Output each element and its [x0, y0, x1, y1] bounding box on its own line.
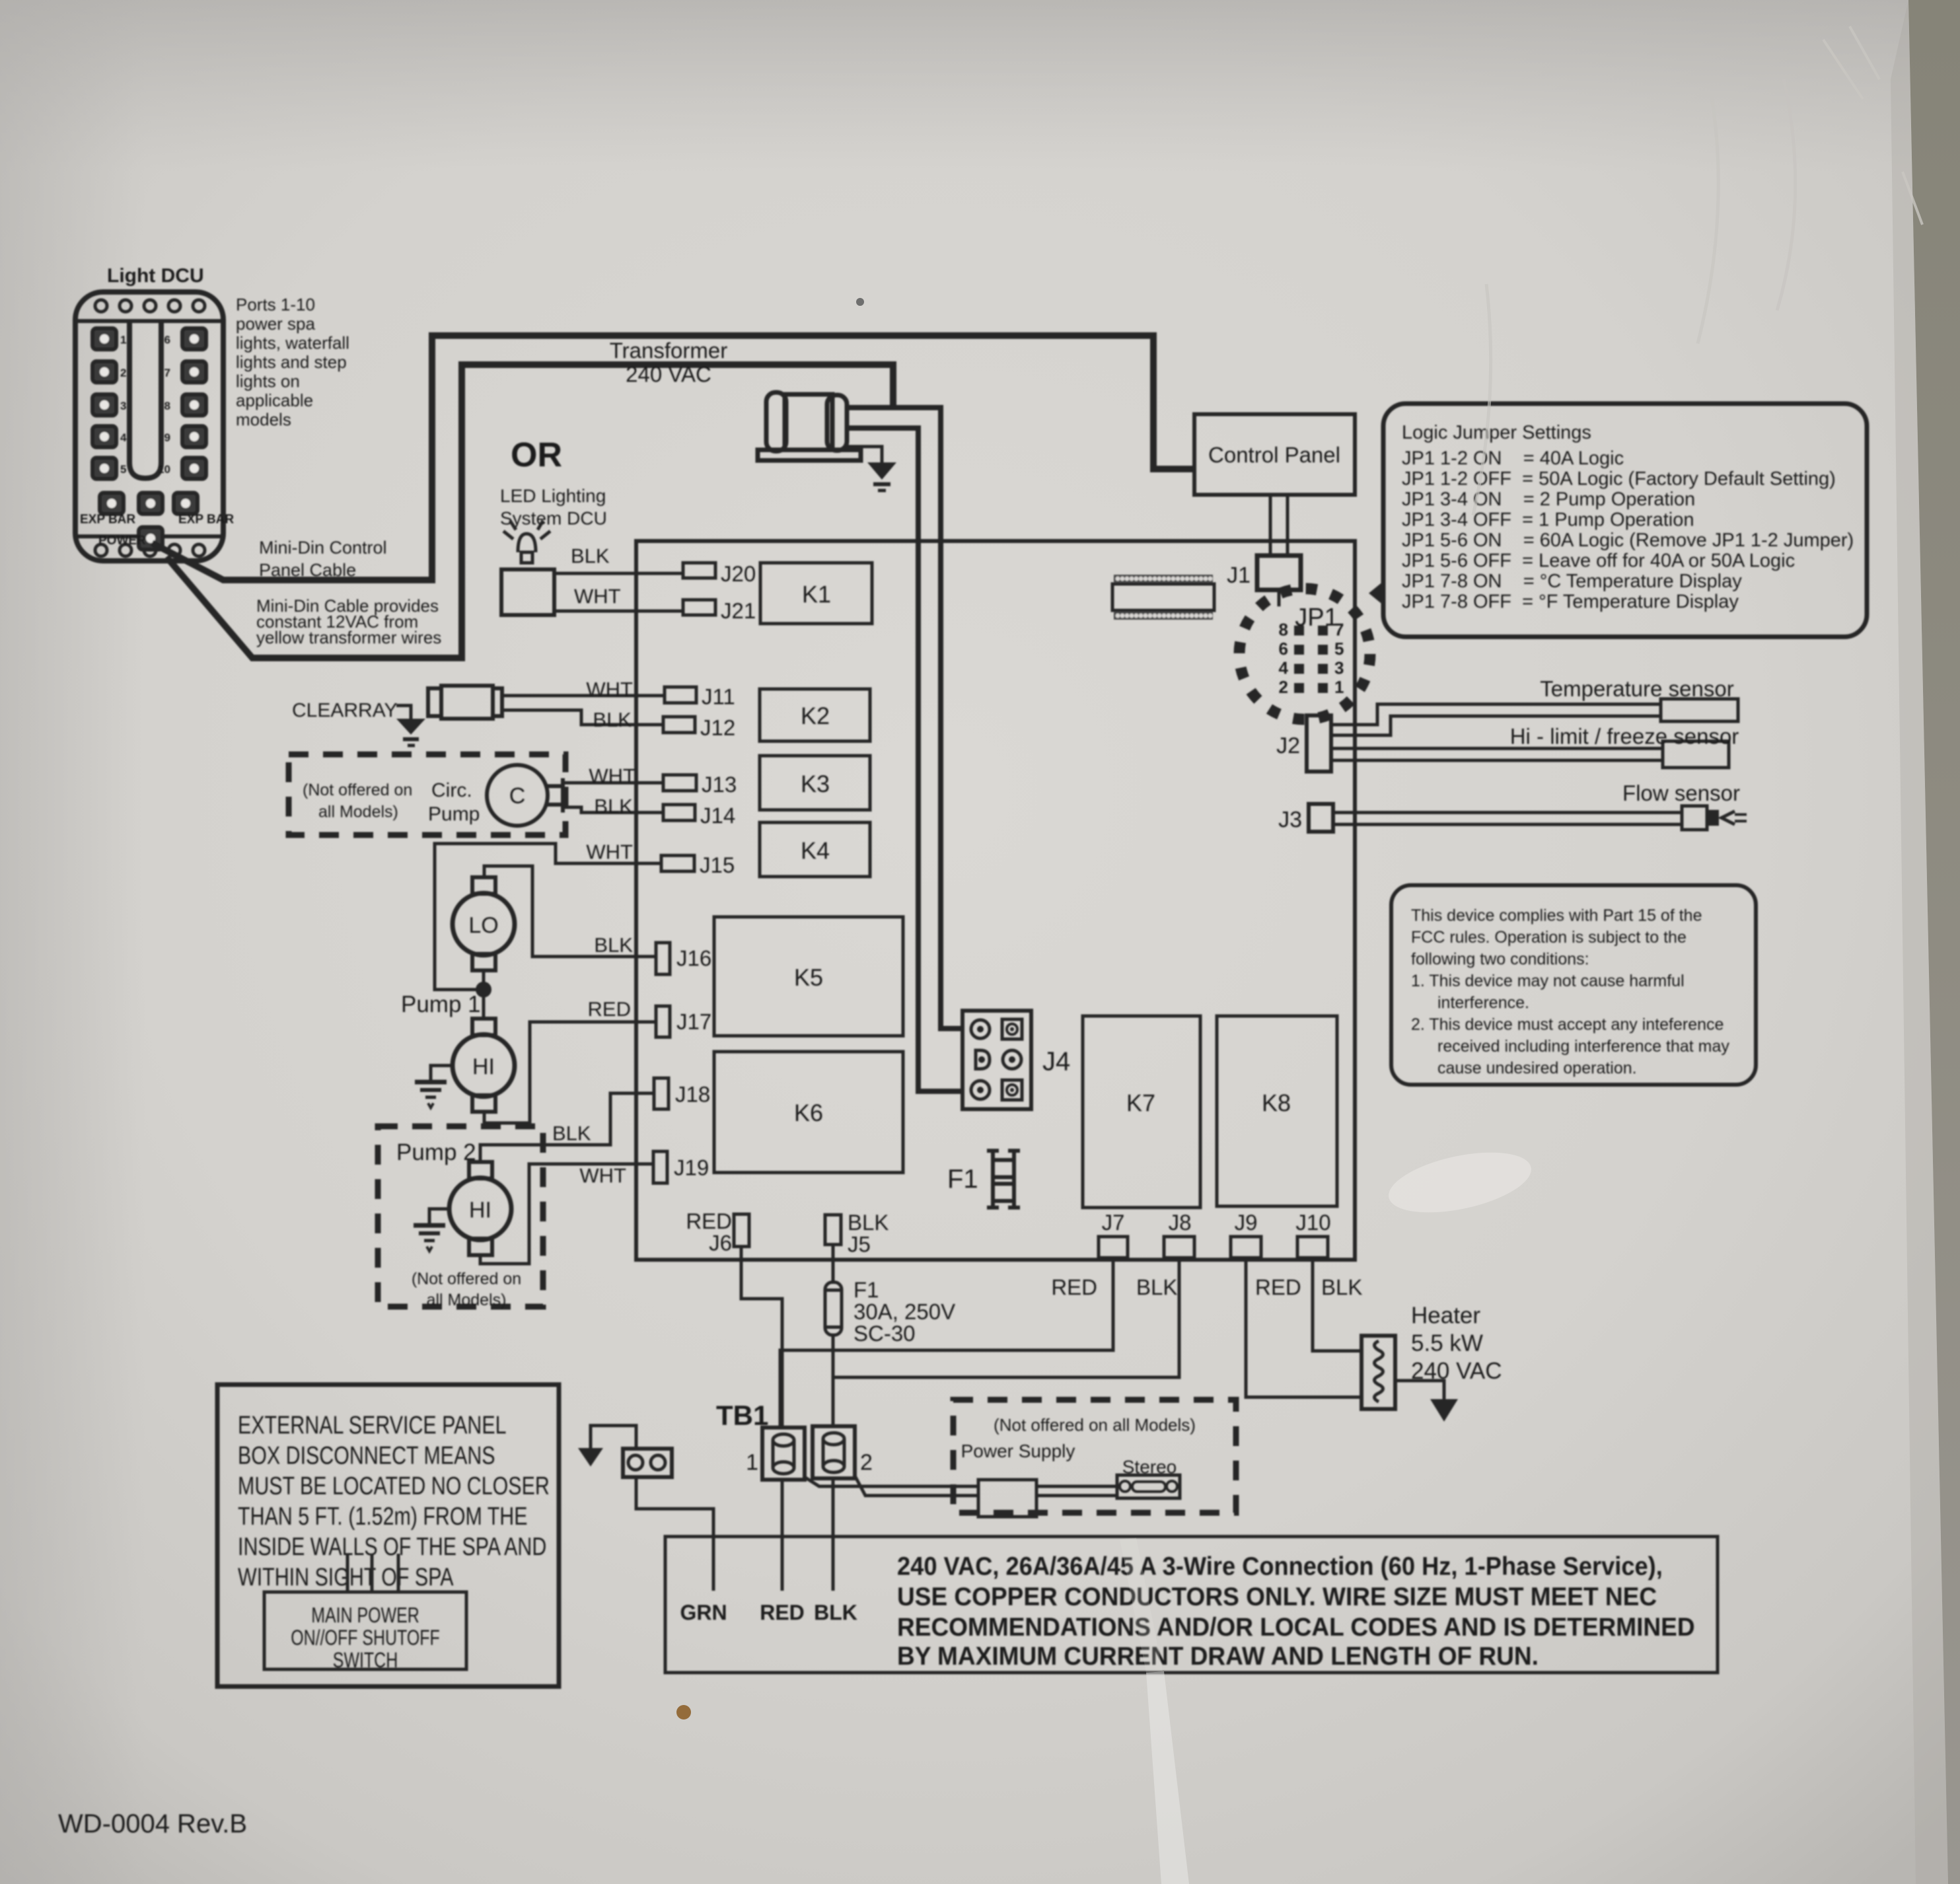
svg-text:JP1 3-4 ON = 2 Pump Operati: JP1 3-4 ON = 2 Pump Operation [1402, 489, 1695, 510]
svg-text:4: 4 [1279, 658, 1289, 678]
svg-text:Temperature sensor: Temperature sensor [1540, 676, 1733, 701]
svg-text:6: 6 [1279, 639, 1288, 659]
svg-text:RECOMMENDATIONS AND/OR LOCAL C: RECOMMENDATIONS AND/OR LOCAL CODES AND I… [897, 1613, 1695, 1642]
svg-text:8: 8 [164, 400, 170, 412]
svg-text:JP1 5-6 ON = 60A Logic (Rem: JP1 5-6 ON = 60A Logic (Remove JP1 1-2 J… [1402, 530, 1854, 551]
svg-text:WHT: WHT [574, 585, 621, 608]
svg-text:5: 5 [120, 463, 126, 476]
svg-text:all Models): all Models) [318, 803, 398, 821]
svg-text:WHT: WHT [586, 678, 633, 701]
svg-text:Power Supply: Power Supply [961, 1441, 1075, 1461]
svg-text:J21: J21 [721, 598, 756, 623]
svg-text:(Not offered on all Models): (Not offered on all Models) [994, 1415, 1196, 1435]
svg-text:1: 1 [120, 334, 126, 346]
svg-text:F1: F1 [853, 1278, 879, 1302]
svg-text:Circ.: Circ. [431, 779, 472, 801]
svg-text:K5: K5 [794, 964, 823, 991]
svg-text:3: 3 [1334, 658, 1344, 678]
svg-text:USE COPPER CONDUCTORS ONLY. WI: USE COPPER CONDUCTORS ONLY. WIRE SIZE MU… [897, 1583, 1657, 1611]
svg-text:240 VAC, 26A/36A/45 A 3-Wire C: 240 VAC, 26A/36A/45 A 3-Wire Connection … [897, 1552, 1663, 1580]
svg-text:30A, 250V: 30A, 250V [853, 1299, 955, 1324]
svg-text:INSIDE WALLS OF THE SPA AND: INSIDE WALLS OF THE SPA AND [238, 1533, 546, 1561]
svg-text:K3: K3 [801, 770, 830, 797]
svg-text:Pump 1: Pump 1 [401, 992, 481, 1017]
svg-text:EXP BAR: EXP BAR [80, 513, 135, 526]
svg-text:J6: J6 [709, 1231, 732, 1255]
svg-text:10: 10 [158, 463, 170, 476]
svg-text:C: C [509, 783, 526, 809]
svg-text:Transformer: Transformer [610, 338, 727, 363]
svg-text:FCC rules. Operation is subje: FCC rules. Operation is subject to the [1411, 928, 1687, 947]
svg-text:RED: RED [588, 997, 631, 1021]
svg-text:K7: K7 [1126, 1089, 1155, 1116]
svg-text:RED: RED [686, 1209, 732, 1233]
svg-text:interference.: interference. [1437, 994, 1529, 1012]
svg-text:RED: RED [760, 1601, 805, 1624]
svg-text:5: 5 [1334, 639, 1344, 659]
svg-text:following two conditions:: following two conditions: [1411, 950, 1589, 968]
svg-text:J20: J20 [721, 562, 756, 586]
svg-text:JP1 7-8 ON = °C Temperature: JP1 7-8 ON = °C Temperature Display [1402, 571, 1742, 592]
svg-text:yellow transformer wires: yellow transformer wires [256, 628, 441, 647]
svg-text:WHT: WHT [579, 1164, 626, 1187]
svg-text:7: 7 [1334, 620, 1344, 639]
svg-text:F1: F1 [947, 1165, 978, 1194]
svg-text:J5: J5 [848, 1232, 871, 1256]
svg-text:7: 7 [164, 367, 170, 379]
svg-text:J11: J11 [702, 684, 735, 709]
svg-text:K1: K1 [802, 581, 831, 608]
svg-text:K2: K2 [801, 702, 830, 729]
svg-text:received including interferenc: received including interference that may [1437, 1037, 1729, 1056]
svg-text:J12: J12 [700, 715, 735, 740]
svg-text:2. This device must accept an: 2. This device must accept any inteferen… [1411, 1015, 1724, 1034]
svg-text:lights on: lights on [236, 371, 300, 391]
svg-text:all Models): all Models) [427, 1291, 507, 1309]
svg-text:J8: J8 [1169, 1210, 1192, 1235]
svg-text:K6: K6 [794, 1099, 823, 1126]
svg-text:WITHIN SIGHT OF SPA: WITHIN SIGHT OF SPA [238, 1564, 454, 1591]
svg-text:System DCU: System DCU [500, 508, 607, 528]
svg-text:J4: J4 [1042, 1047, 1070, 1076]
svg-text:2: 2 [860, 1450, 873, 1475]
svg-text:1: 1 [1334, 677, 1344, 697]
svg-text:cause undesired operation.: cause undesired operation. [1437, 1059, 1637, 1077]
svg-text:applicable: applicable [236, 390, 313, 410]
svg-text:8: 8 [1279, 620, 1288, 639]
svg-text:Light DCU: Light DCU [107, 265, 204, 287]
svg-text:(Not offered on: (Not offered on [412, 1270, 521, 1288]
svg-text:THAN 5 FT. (1.52m) FROM THE: THAN 5 FT. (1.52m) FROM THE [238, 1503, 528, 1531]
svg-text:BY MAXIMUM CURRENT DRAW AND LE: BY MAXIMUM CURRENT DRAW AND LENGTH OF RU… [897, 1642, 1539, 1671]
svg-text:lights and step: lights and step [236, 352, 347, 372]
svg-text:BOX DISCONNECT MEANS: BOX DISCONNECT MEANS [238, 1442, 495, 1470]
svg-text:power spa: power spa [236, 314, 315, 334]
svg-text:1. This device may not cause: 1. This device may not cause harmful [1411, 972, 1685, 990]
svg-text:Flow sensor: Flow sensor [1622, 781, 1740, 805]
svg-text:J15: J15 [700, 853, 735, 877]
svg-text:J17: J17 [676, 1009, 711, 1034]
svg-text:BLK: BLK [1321, 1275, 1362, 1299]
svg-text:(Not offered on: (Not offered on [303, 781, 412, 799]
svg-text:JP1 7-8 OFF = °F Temperature: JP1 7-8 OFF = °F Temperature Display [1402, 591, 1739, 612]
svg-text:J16: J16 [676, 946, 711, 970]
svg-text:WD-0004 Rev.B: WD-0004 Rev.B [58, 1809, 247, 1838]
svg-text:MUST BE LOCATED NO CLOSER: MUST BE LOCATED NO CLOSER [238, 1472, 550, 1500]
svg-text:Mini-Din Control: Mini-Din Control [259, 538, 387, 558]
svg-text:J1: J1 [1227, 563, 1251, 588]
svg-text:6: 6 [164, 334, 170, 346]
svg-text:Logic Jumper Settings: Logic Jumper Settings [1402, 422, 1591, 443]
svg-text:EXP BAR: EXP BAR [178, 513, 234, 526]
svg-text:Heater: Heater [1411, 1303, 1480, 1328]
svg-text:LO: LO [468, 913, 498, 938]
svg-text:SWITCH: SWITCH [333, 1649, 398, 1673]
svg-text:4: 4 [120, 431, 127, 444]
svg-text:2: 2 [120, 367, 126, 379]
svg-text:WHT: WHT [586, 840, 633, 863]
svg-text:J19: J19 [674, 1155, 709, 1180]
svg-text:RED: RED [1255, 1275, 1301, 1299]
svg-text:lights, waterfall: lights, waterfall [236, 333, 349, 353]
svg-text:BLK: BLK [552, 1122, 591, 1145]
svg-text:2: 2 [1279, 677, 1288, 697]
svg-text:Pump 2: Pump 2 [396, 1140, 476, 1165]
svg-text:K8: K8 [1262, 1089, 1291, 1116]
svg-text:Hi - limit / freeze sensor: Hi - limit / freeze sensor [1510, 724, 1739, 748]
svg-text:JP1 5-6 OFF = Leave off for 4: JP1 5-6 OFF = Leave off for 40A or 50A L… [1402, 550, 1795, 571]
svg-text:EXTERNAL SERVICE PANEL: EXTERNAL SERVICE PANEL [238, 1412, 507, 1439]
svg-text:BLK: BLK [848, 1210, 889, 1235]
svg-text:J14: J14 [700, 803, 735, 828]
svg-text:JP1 3-4 OFF = 1 Pump Operatio: JP1 3-4 OFF = 1 Pump Operation [1402, 509, 1694, 530]
svg-text:BLK: BLK [593, 708, 632, 731]
svg-text:J3: J3 [1278, 807, 1302, 832]
svg-text:5.5 kW: 5.5 kW [1411, 1330, 1483, 1356]
svg-text:Ports 1-10: Ports 1-10 [236, 295, 315, 314]
svg-text:ON//OFF SHUTOFF: ON//OFF SHUTOFF [291, 1626, 439, 1650]
svg-text:J10: J10 [1295, 1210, 1330, 1235]
svg-text:CLEARRAY: CLEARRAY [292, 700, 398, 721]
svg-text:BLK: BLK [594, 933, 633, 957]
svg-text:HI: HI [469, 1198, 491, 1223]
svg-text:JP1 1-2 ON = 40A Logic: JP1 1-2 ON = 40A Logic [1402, 448, 1624, 469]
svg-text:This device complies with Part: This device complies with Part 15 of the [1411, 906, 1702, 925]
svg-text:Control Panel: Control Panel [1208, 443, 1340, 467]
svg-text:3: 3 [120, 400, 126, 412]
svg-text:J9: J9 [1235, 1210, 1258, 1235]
svg-text:J7: J7 [1102, 1210, 1125, 1235]
svg-text:Pump: Pump [428, 803, 480, 825]
svg-text:MAIN POWER: MAIN POWER [311, 1604, 419, 1628]
svg-text:POWER: POWER [98, 534, 146, 548]
svg-text:HI: HI [472, 1054, 495, 1079]
svg-text:OR: OR [511, 436, 562, 474]
svg-text:K4: K4 [801, 837, 830, 864]
svg-text:BLK: BLK [594, 795, 633, 818]
svg-text:240 VAC: 240 VAC [626, 362, 711, 386]
svg-text:models: models [236, 410, 291, 429]
svg-text:J2: J2 [1276, 733, 1300, 758]
svg-text:SC-30: SC-30 [853, 1321, 916, 1346]
svg-text:GRN: GRN [680, 1601, 727, 1624]
svg-text:BLK: BLK [571, 544, 610, 567]
svg-text:9: 9 [164, 431, 170, 444]
svg-text:WHT: WHT [589, 764, 635, 787]
svg-text:RED: RED [1051, 1275, 1097, 1299]
svg-text:J13: J13 [702, 772, 737, 797]
svg-text:LED Lighting: LED Lighting [500, 486, 606, 506]
svg-text:J18: J18 [675, 1082, 710, 1106]
svg-text:BLK: BLK [814, 1601, 857, 1624]
svg-text:BLK: BLK [1136, 1275, 1177, 1299]
svg-text:JP1 1-2 OFF = 50A Logic (Fact: JP1 1-2 OFF = 50A Logic (Factory Default… [1402, 468, 1836, 489]
svg-text:1: 1 [746, 1450, 758, 1475]
